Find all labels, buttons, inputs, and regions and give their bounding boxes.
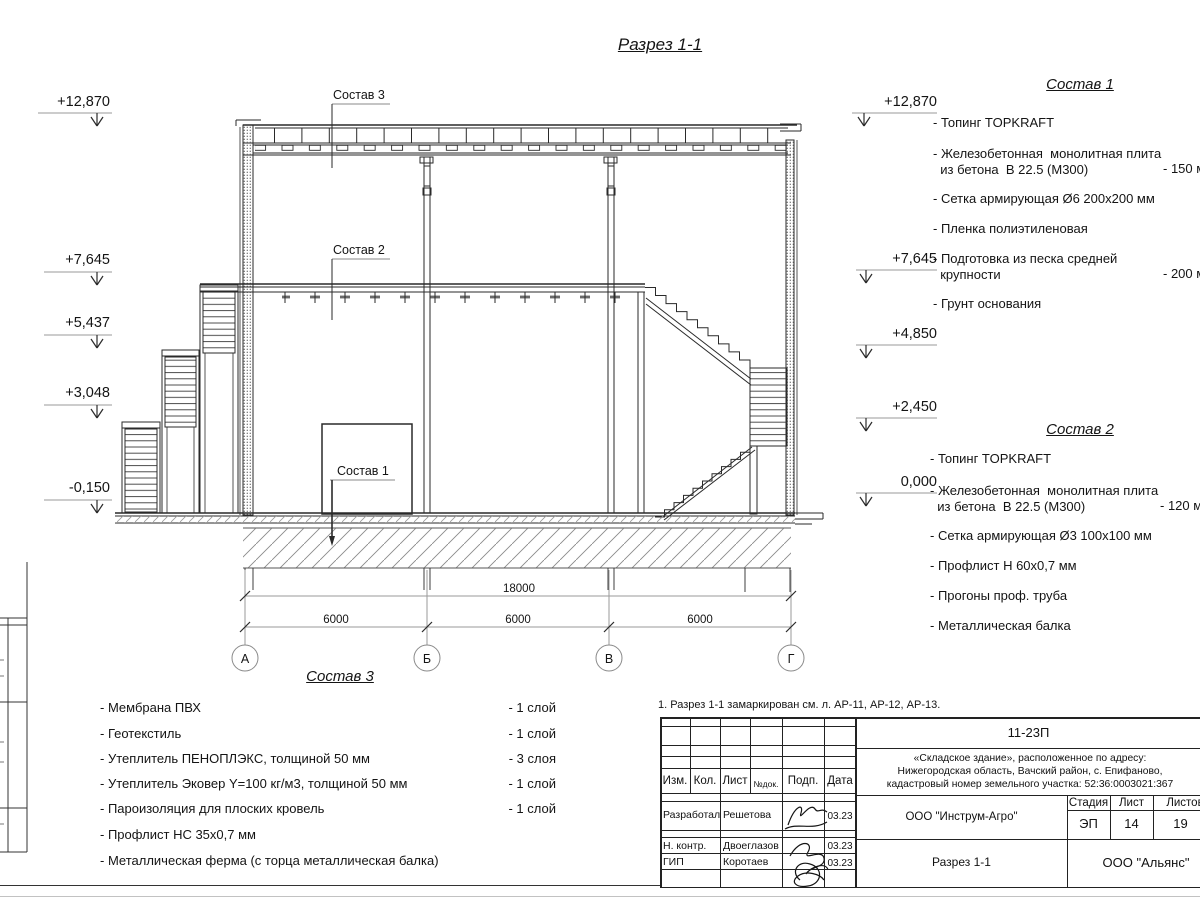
left-towers — [122, 285, 238, 513]
callout-leaders — [329, 104, 395, 546]
tb-role-ncontrol: Н. контр. — [663, 840, 706, 853]
dim-total: 18000 — [503, 583, 535, 595]
composition-item: - Железобетонная монолитная плита из бет… — [930, 483, 1170, 514]
composition-2-title: Состав 2 — [1020, 421, 1140, 439]
composition-item-qty: - 3 слоя — [470, 751, 556, 767]
tb-firm: ООО "Альянс" — [1067, 856, 1200, 869]
staircase — [638, 288, 787, 521]
composition-item: - Прогоны проф. труба — [930, 588, 1170, 604]
composition-item: - Мембрана ПВХ — [100, 700, 460, 716]
composition-item: - Топинг TOPKRAFT — [930, 451, 1170, 467]
ground-slab — [115, 513, 823, 592]
tb-name-gip: Коротаев — [723, 856, 768, 869]
dimension-lines — [240, 570, 796, 646]
elevation-left-1: +12,870 — [30, 95, 110, 110]
elevation-left-4: +3,048 — [30, 386, 110, 401]
composition-item-note: - 200 мм — [1163, 266, 1200, 282]
tb-name-developer: Решетова — [723, 809, 771, 822]
composition-3-title: Состав 3 — [280, 668, 400, 686]
elevation-left-5: -0,150 — [30, 481, 110, 496]
signature-developer — [785, 807, 827, 829]
composition-item-qty: - 1 слой — [470, 726, 556, 742]
composition-item-note: - 120 мм — [1160, 498, 1200, 514]
elevation-left-3: +5,437 — [30, 316, 110, 331]
elevation-right-2: +7,645 — [857, 252, 937, 267]
tb-header-ndok: №док. — [750, 778, 782, 791]
tb-header-kol: Кол. — [690, 775, 720, 788]
composition-item: - Утеплитель Эковер Y=100 кг/м3, толщино… — [100, 776, 460, 792]
composition-item: - Сетка армирующая Ø3 100х100 мм — [930, 528, 1180, 544]
elevation-right-1: +12,870 — [857, 95, 937, 110]
second-floor — [200, 284, 645, 303]
dim-segment-1: 6000 — [323, 614, 349, 626]
composition-item: - Утеплитель ПЕНОПЛЭКС, толщиной 50 мм — [100, 751, 460, 767]
tb-role-developer: Разработал — [663, 809, 720, 822]
drawing-sheet: 18000 6000 6000 6000 А Б В Г — [0, 0, 1200, 900]
composition-item: - Грунт основания — [933, 296, 1173, 312]
axis-label-a: А — [241, 652, 250, 666]
tb-header-list: Лист — [720, 775, 750, 788]
tb-list-header: Лист — [1110, 797, 1153, 810]
tb-header-podp: Подп. — [782, 775, 824, 788]
axis-letters: А Б В Г — [241, 652, 795, 666]
page-title: Разрез 1-1 — [555, 35, 765, 55]
composition-item-qty: - 1 слой — [470, 700, 556, 716]
tb-sheet-title: Разрез 1-1 — [856, 856, 1067, 869]
tb-date-gip: 03.23 — [824, 857, 856, 870]
tb-project-line-3: кадастровый номер земельного участка: 52… — [856, 778, 1200, 791]
composition-item: - Сетка армирующая Ø6 200х200 мм — [933, 191, 1183, 207]
tb-header-izm: Изм. — [660, 775, 690, 788]
callout-sostav-2: Состав 2 — [333, 244, 393, 257]
composition-item-qty: - 1 слой — [470, 776, 556, 792]
tb-date-developer: 03.23 — [824, 810, 856, 823]
tb-company: ООО "Инструм-Агро" — [856, 811, 1067, 824]
tb-list-value: 14 — [1110, 817, 1153, 830]
axis-label-v: В — [605, 652, 613, 666]
composition-item-qty: - 1 слой — [470, 801, 556, 817]
tb-project-line-2: Нижегородская область, Вачский район, с.… — [856, 765, 1200, 778]
composition-item: - Профлист Н 60х0,7 мм — [930, 558, 1170, 574]
columns — [420, 157, 617, 513]
tb-stage-header: Стадия — [1067, 797, 1110, 810]
elevation-right-5: 0,000 — [857, 475, 937, 490]
composition-item: - Металлическая ферма (с торца металличе… — [100, 853, 520, 869]
tb-doc-number: 11-23П — [856, 726, 1200, 739]
elevation-left-2: +7,645 — [30, 253, 110, 268]
callout-sostav-1: Состав 1 — [337, 465, 397, 478]
dim-segment-3: 6000 — [687, 614, 713, 626]
tb-name-ncontrol: Двоеглазов — [723, 840, 779, 853]
composition-item: - Профлист НС 35х0,7 мм — [100, 827, 460, 843]
sheet-note: 1. Разрез 1-1 замаркирован см. л. АР-11,… — [658, 699, 1078, 712]
roof-truss — [236, 120, 801, 155]
tb-stage-value: ЭП — [1067, 817, 1110, 830]
composition-item-note: - 150 мм — [1163, 161, 1200, 177]
elevation-right-4: +2,450 — [857, 400, 937, 415]
elevation-marks — [38, 113, 937, 513]
composition-1-title: Состав 1 — [1020, 76, 1140, 94]
tb-listov-value: 19 — [1153, 817, 1200, 830]
callout-sostav-3: Состав 3 — [333, 89, 393, 102]
composition-item: - Топинг TOPKRAFT — [933, 115, 1173, 131]
composition-item: - Пароизоляция для плоских кровель — [100, 801, 460, 817]
tb-role-gip: ГИП — [663, 856, 684, 869]
composition-item: - Металлическая балка — [930, 618, 1170, 634]
tb-listov-header: Листов — [1155, 797, 1200, 810]
axis-label-b: Б — [423, 652, 431, 666]
dimension-texts: 18000 6000 6000 6000 — [323, 583, 713, 626]
walls — [240, 125, 797, 515]
composition-item: - Пленка полиэтиленовая — [933, 221, 1173, 237]
dim-segment-2: 6000 — [505, 614, 531, 626]
signature-gip — [790, 844, 828, 887]
elevation-right-3: +4,850 — [857, 327, 937, 342]
composition-item: - Подготовка из песка средней крупности — [933, 251, 1173, 282]
composition-item: - Геотекстиль — [100, 726, 460, 742]
axis-label-g: Г — [788, 652, 795, 666]
tb-date-ncontrol: 03.23 — [824, 840, 856, 853]
tb-project-line-1: «Складское здание», расположенное по адр… — [856, 752, 1200, 765]
tb-header-data: Дата — [824, 775, 856, 788]
composition-item: - Железобетонная монолитная плита из бет… — [933, 146, 1173, 177]
